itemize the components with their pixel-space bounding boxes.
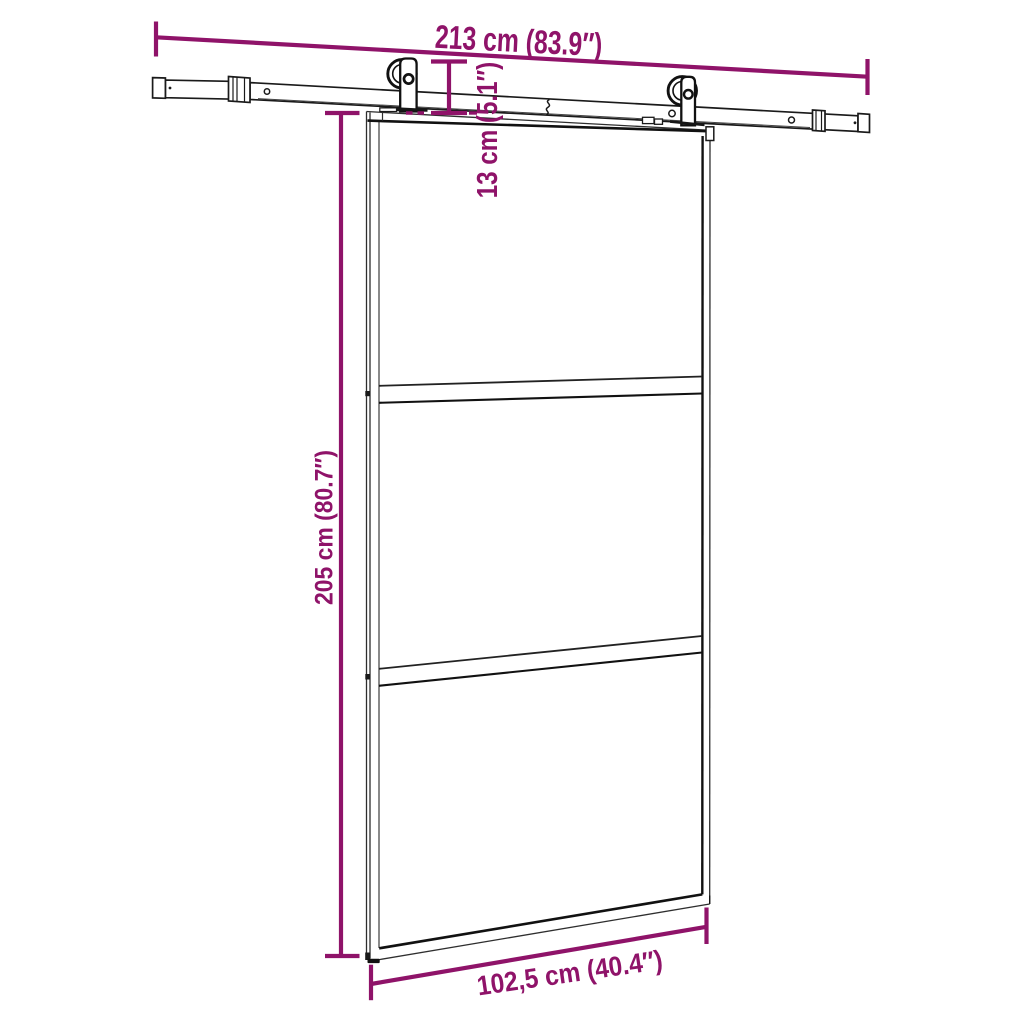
svg-text:13 cm (5.1″): 13 cm (5.1″) (472, 62, 504, 199)
svg-text:205 cm (80.7″): 205 cm (80.7″) (311, 450, 339, 605)
